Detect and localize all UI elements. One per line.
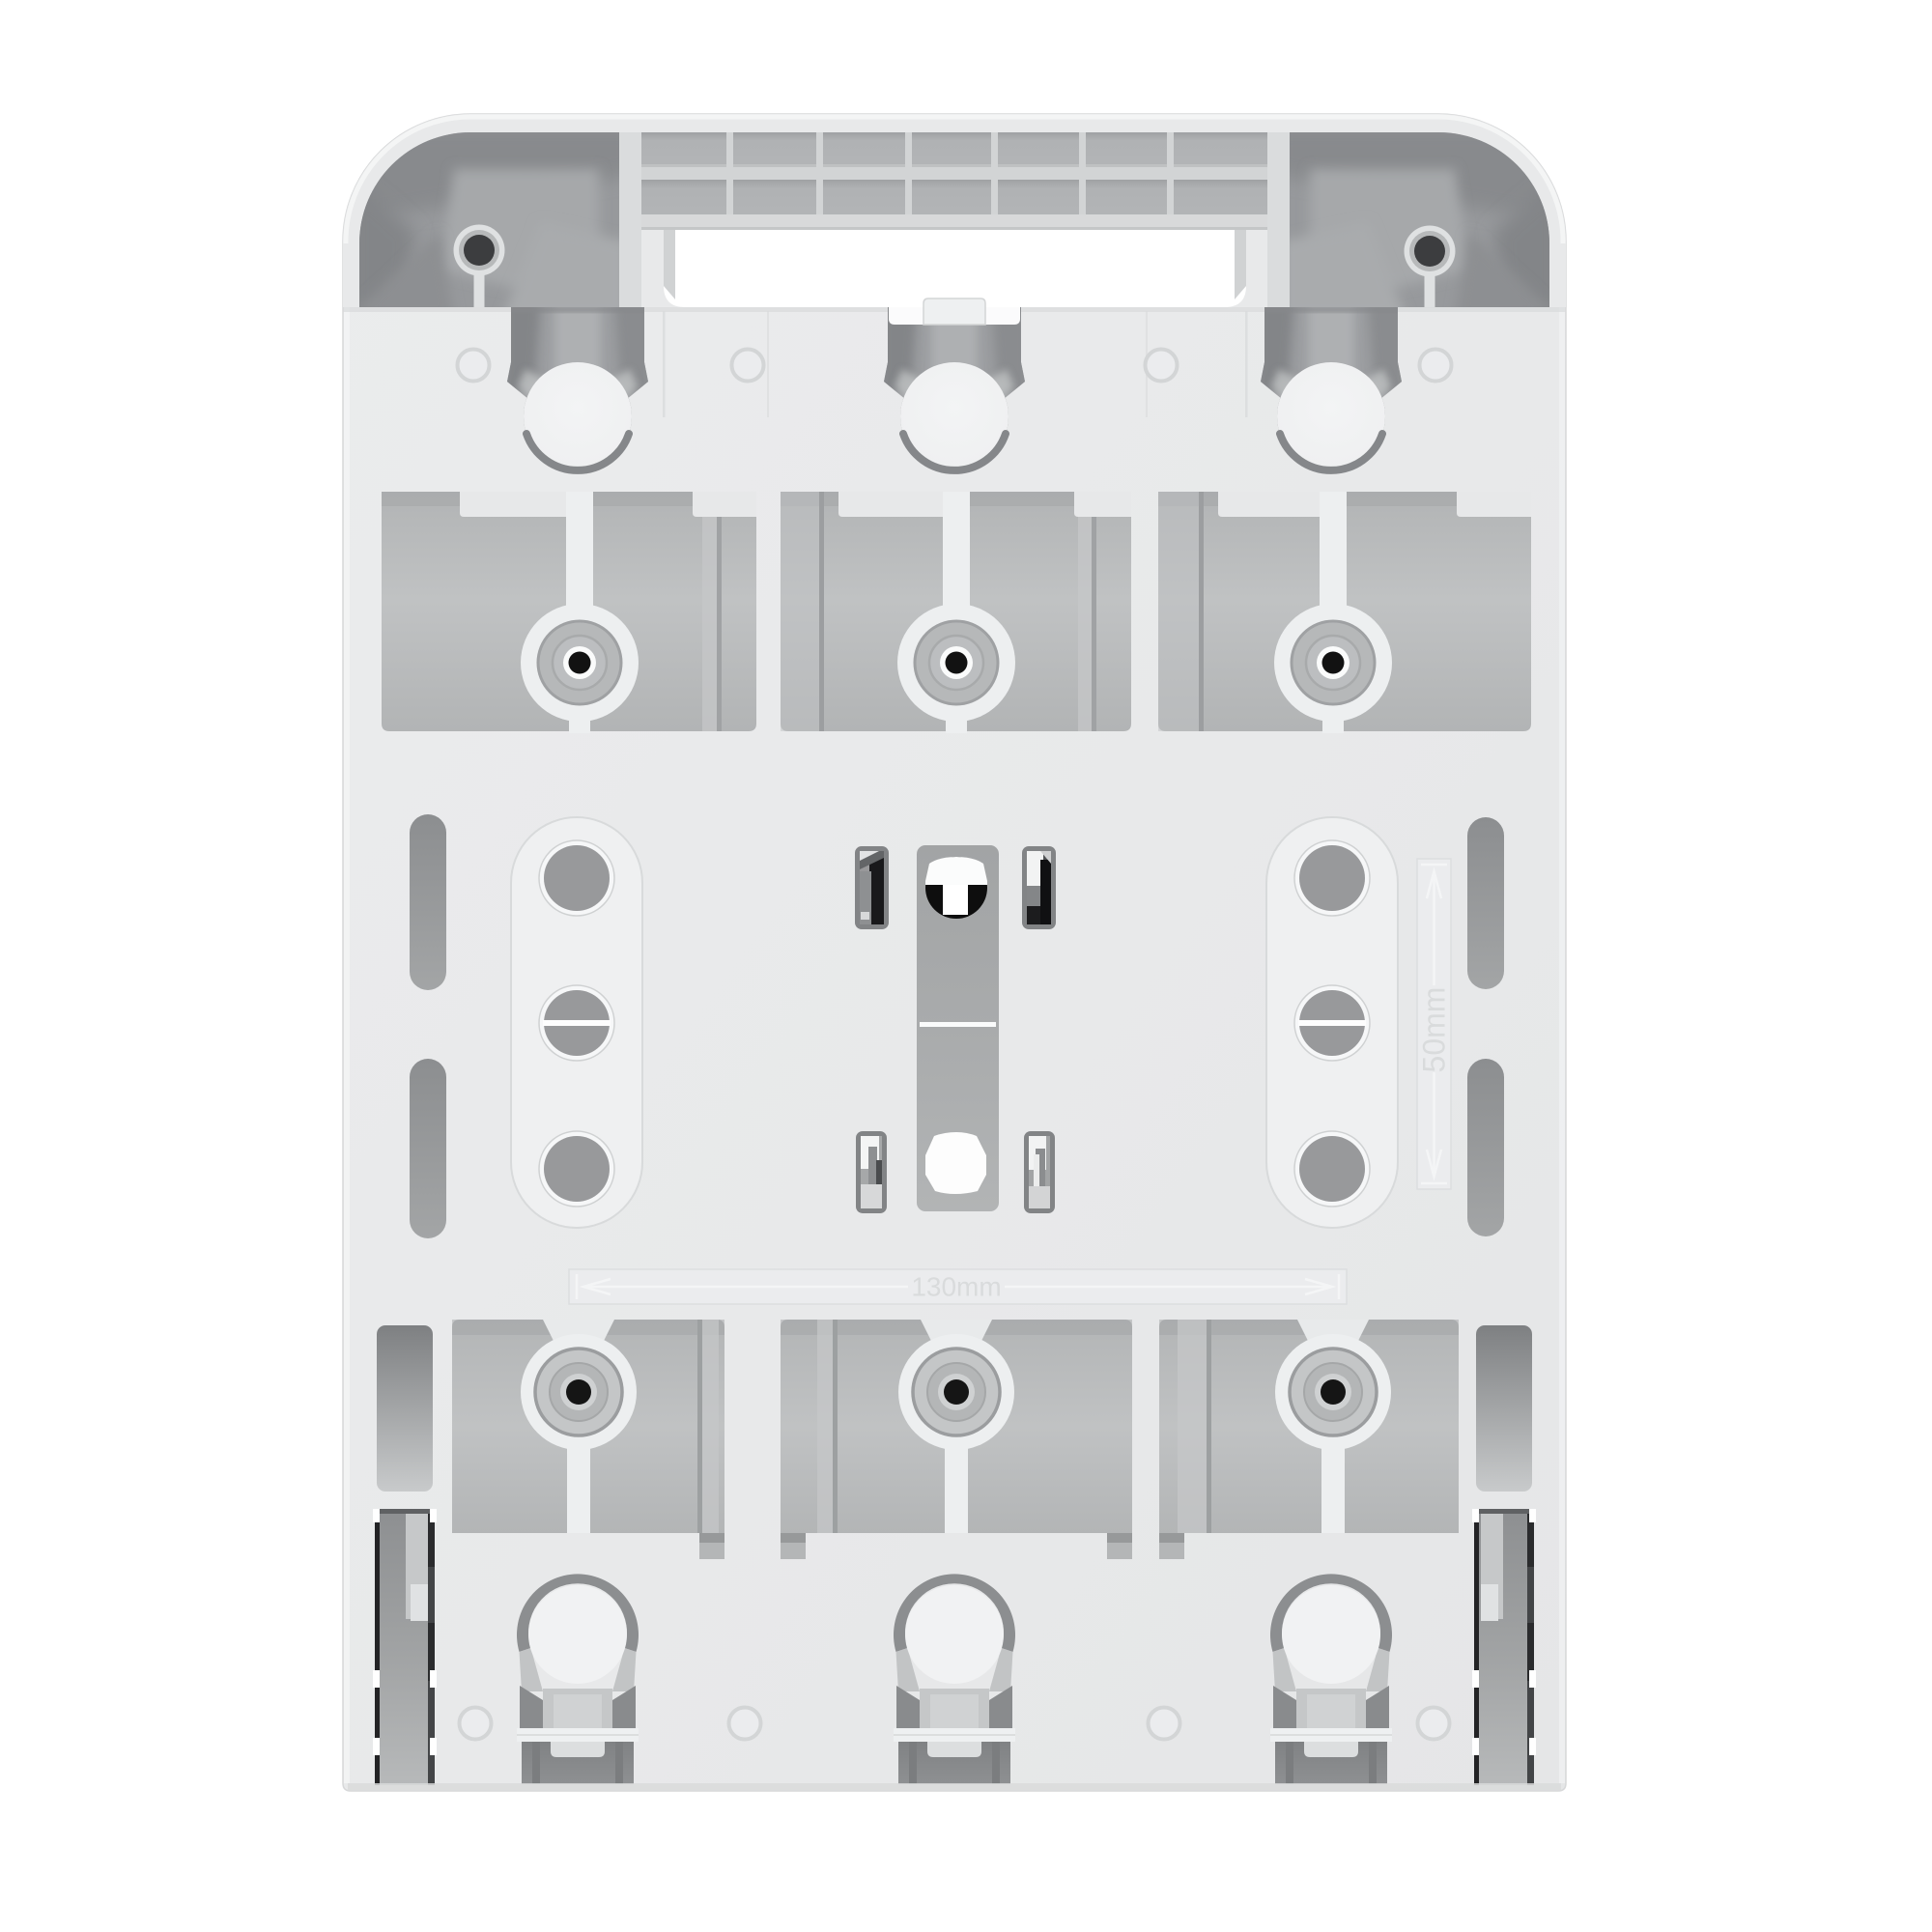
- svg-text:50mm: 50mm: [1417, 987, 1452, 1073]
- svg-text:130mm: 130mm: [911, 1272, 1001, 1302]
